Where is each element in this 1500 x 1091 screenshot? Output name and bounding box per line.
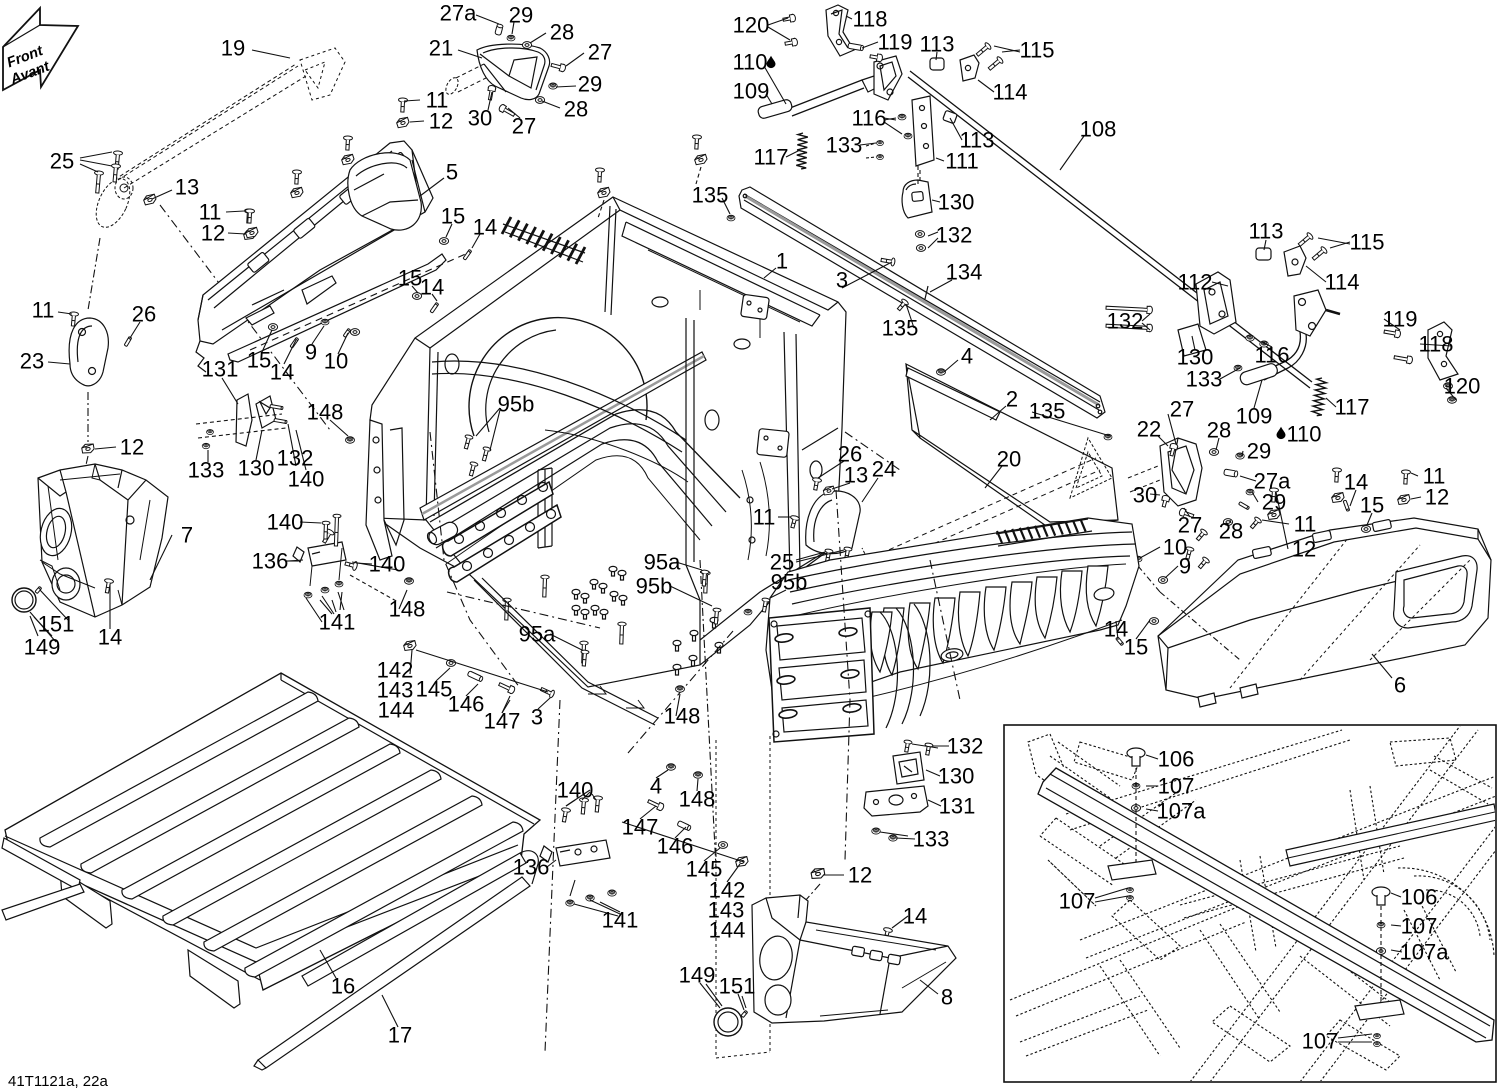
svg-text:140: 140 — [288, 467, 325, 492]
svg-text:135: 135 — [1029, 399, 1066, 424]
svg-text:133: 133 — [1186, 367, 1223, 392]
svg-text:4: 4 — [650, 774, 662, 799]
svg-text:107a: 107a — [1157, 799, 1207, 824]
svg-text:9: 9 — [305, 340, 317, 365]
svg-text:110: 110 — [1286, 422, 1321, 447]
svg-text:141: 141 — [602, 908, 639, 933]
svg-text:14: 14 — [420, 275, 444, 300]
svg-text:133: 133 — [826, 133, 863, 158]
svg-text:4: 4 — [961, 344, 973, 369]
svg-text:27: 27 — [1170, 397, 1194, 422]
svg-text:12: 12 — [848, 863, 872, 888]
svg-text:30: 30 — [1133, 483, 1157, 508]
svg-text:21: 21 — [429, 36, 453, 61]
svg-text:2: 2 — [1006, 387, 1018, 412]
svg-text:113: 113 — [1248, 219, 1283, 244]
svg-text:115: 115 — [1349, 230, 1384, 255]
svg-text:130: 130 — [938, 764, 975, 789]
svg-text:29: 29 — [1262, 490, 1286, 515]
svg-text:106: 106 — [1158, 747, 1195, 772]
svg-text:25: 25 — [50, 149, 74, 174]
svg-text:114: 114 — [992, 80, 1027, 105]
svg-text:144: 144 — [378, 698, 415, 723]
svg-text:15: 15 — [398, 266, 422, 291]
svg-text:106: 106 — [1401, 885, 1438, 910]
svg-text:119: 119 — [1382, 307, 1417, 332]
svg-text:15: 15 — [247, 348, 271, 373]
svg-text:27: 27 — [588, 40, 612, 65]
svg-text:24: 24 — [872, 457, 896, 482]
svg-text:14: 14 — [270, 360, 294, 385]
svg-text:140: 140 — [557, 778, 594, 803]
svg-text:29: 29 — [509, 3, 533, 28]
svg-text:1: 1 — [776, 249, 788, 274]
svg-text:120: 120 — [1444, 374, 1481, 399]
svg-text:3: 3 — [836, 268, 848, 293]
svg-text:95a: 95a — [519, 622, 556, 647]
svg-text:12: 12 — [429, 109, 453, 134]
svg-text:95b: 95b — [771, 570, 808, 595]
svg-text:28: 28 — [564, 97, 588, 122]
svg-text:107a: 107a — [1400, 940, 1450, 965]
svg-text:140: 140 — [267, 510, 304, 535]
svg-text:14: 14 — [98, 625, 122, 650]
svg-text:12: 12 — [1425, 485, 1449, 510]
svg-text:132: 132 — [936, 223, 973, 248]
svg-text:17: 17 — [388, 1023, 412, 1048]
svg-text:12: 12 — [1292, 537, 1316, 562]
svg-text:28: 28 — [1207, 418, 1231, 443]
svg-text:95b: 95b — [636, 574, 673, 599]
svg-text:131: 131 — [202, 357, 239, 382]
svg-text:3: 3 — [531, 705, 543, 730]
svg-text:14: 14 — [903, 904, 927, 929]
svg-text:5: 5 — [446, 160, 458, 185]
svg-text:41T1121a, 22a: 41T1121a, 22a — [8, 1073, 108, 1090]
svg-text:15: 15 — [1360, 493, 1384, 518]
svg-text:114: 114 — [1324, 270, 1359, 295]
svg-text:148: 148 — [679, 787, 716, 812]
svg-text:28: 28 — [1219, 519, 1243, 544]
svg-text:13: 13 — [844, 463, 868, 488]
svg-text:146: 146 — [657, 834, 694, 859]
svg-text:95b: 95b — [498, 392, 535, 417]
svg-text:7: 7 — [181, 523, 193, 548]
svg-text:131: 131 — [939, 794, 976, 819]
svg-text:109: 109 — [733, 79, 770, 104]
svg-text:151: 151 — [719, 974, 756, 999]
svg-text:12: 12 — [201, 221, 225, 246]
svg-text:141: 141 — [319, 610, 356, 635]
svg-text:95a: 95a — [644, 550, 681, 575]
svg-text:132: 132 — [947, 734, 984, 759]
svg-text:11: 11 — [32, 298, 55, 323]
svg-text:107: 107 — [1302, 1029, 1339, 1054]
svg-text:6: 6 — [1394, 673, 1406, 698]
svg-text:27a: 27a — [440, 1, 477, 26]
svg-text:148: 148 — [664, 704, 701, 729]
svg-text:20: 20 — [997, 447, 1021, 472]
svg-text:110: 110 — [732, 50, 767, 75]
svg-text:148: 148 — [307, 400, 344, 425]
svg-text:15: 15 — [1124, 635, 1148, 660]
svg-text:8: 8 — [941, 985, 953, 1010]
svg-text:149: 149 — [24, 635, 61, 660]
svg-text:29: 29 — [1247, 439, 1271, 464]
svg-text:16: 16 — [331, 974, 355, 999]
svg-text:26: 26 — [132, 302, 156, 327]
svg-text:133: 133 — [188, 458, 225, 483]
svg-text:109: 109 — [1236, 404, 1273, 429]
svg-text:11: 11 — [753, 505, 776, 530]
svg-text:146: 146 — [448, 692, 485, 717]
svg-text:112: 112 — [1177, 270, 1212, 295]
svg-text:13: 13 — [175, 175, 199, 200]
svg-text:147: 147 — [622, 815, 659, 840]
svg-text:140: 140 — [369, 552, 406, 577]
svg-text:118: 118 — [1418, 332, 1453, 357]
svg-text:30: 30 — [468, 106, 492, 131]
svg-text:107: 107 — [1158, 774, 1195, 799]
svg-text:22: 22 — [1137, 417, 1161, 442]
svg-text:111: 111 — [945, 149, 978, 174]
svg-text:118: 118 — [852, 7, 887, 32]
svg-text:12: 12 — [120, 435, 144, 460]
svg-text:19: 19 — [221, 36, 245, 61]
svg-text:116: 116 — [851, 106, 886, 131]
svg-text:133: 133 — [913, 827, 950, 852]
svg-text:134: 134 — [946, 260, 983, 285]
svg-text:15: 15 — [441, 204, 465, 229]
svg-text:147: 147 — [484, 709, 521, 734]
svg-text:130: 130 — [938, 190, 975, 215]
svg-text:107: 107 — [1059, 889, 1096, 914]
svg-text:144: 144 — [709, 918, 746, 943]
svg-text:11: 11 — [1294, 512, 1317, 537]
svg-text:113: 113 — [919, 32, 954, 57]
svg-text:135: 135 — [882, 316, 919, 341]
svg-text:120: 120 — [733, 13, 770, 38]
svg-text:10: 10 — [324, 349, 348, 374]
svg-text:117: 117 — [1334, 395, 1369, 420]
svg-text:149: 149 — [679, 963, 716, 988]
svg-text:136: 136 — [252, 549, 289, 574]
svg-text:9: 9 — [1179, 554, 1191, 579]
svg-text:29: 29 — [578, 72, 602, 97]
svg-text:132: 132 — [1107, 309, 1144, 334]
svg-text:108: 108 — [1080, 117, 1117, 142]
svg-text:136: 136 — [513, 855, 550, 880]
svg-text:115: 115 — [1019, 38, 1054, 63]
svg-text:14: 14 — [473, 215, 497, 240]
svg-text:14: 14 — [1344, 470, 1368, 495]
svg-text:117: 117 — [753, 145, 788, 170]
svg-text:130: 130 — [238, 456, 275, 481]
svg-text:148: 148 — [389, 597, 426, 622]
svg-text:116: 116 — [1254, 343, 1289, 368]
svg-text:27: 27 — [512, 114, 536, 139]
svg-text:119: 119 — [877, 30, 912, 55]
svg-text:135: 135 — [692, 183, 729, 208]
svg-text:107: 107 — [1401, 914, 1438, 939]
svg-text:28: 28 — [550, 20, 574, 45]
svg-text:151: 151 — [38, 612, 75, 637]
svg-text:23: 23 — [20, 349, 44, 374]
